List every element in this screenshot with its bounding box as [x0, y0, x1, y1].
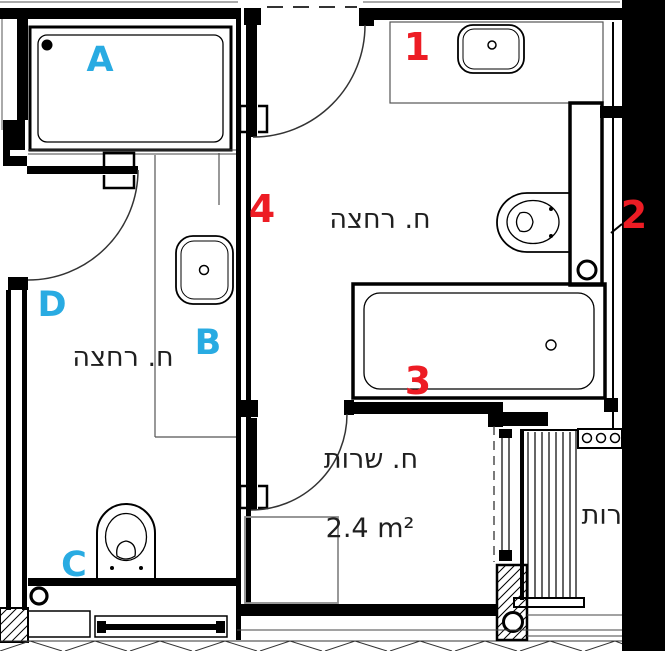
- vent-bar-three-circles: [578, 429, 622, 448]
- door-bathroom-main-swing-arc: [253, 25, 365, 137]
- marker-d: D: [37, 285, 66, 325]
- door-d: [27, 153, 138, 280]
- room-label-service: ח. שרות: [324, 444, 418, 475]
- room-label-bathroom-secondary: ח. רחצה: [72, 342, 173, 373]
- neighbor-room-label: רות: [582, 500, 622, 531]
- sink-1-drain: [488, 41, 496, 49]
- bathtub-a-drain: [42, 40, 53, 51]
- bottom-window: [28, 611, 227, 637]
- duct-pipe: [578, 261, 596, 279]
- left-wall: [3, 8, 28, 610]
- marker-4: 4: [249, 187, 275, 231]
- washing-machine: [245, 517, 338, 603]
- duct-shaft-right: [570, 103, 602, 285]
- marker-a: A: [86, 40, 113, 80]
- marker-3: 3: [405, 359, 431, 403]
- column-pipe: [504, 613, 523, 632]
- floor-plan-drawing: רות ח. רחצה ח. רחצה ח. שרות 2.4 m² 1 2 3…: [0, 0, 665, 651]
- wall-jog-tub-corner: [604, 398, 618, 412]
- door-bathroom-main: [240, 25, 365, 137]
- tile-paving-band: [0, 641, 623, 651]
- room-label-bathroom-main: ח. רחצה: [329, 204, 430, 235]
- marker-c: C: [61, 545, 87, 585]
- washbasin-b: [176, 236, 233, 304]
- bathtub-a: [30, 27, 231, 150]
- redaction-band-right: [622, 0, 665, 651]
- toilet-c: [97, 504, 155, 578]
- marker-b: B: [195, 323, 222, 363]
- neighbor-floor-lines: [237, 615, 622, 636]
- radiator-striped-element: [514, 430, 584, 607]
- hatched-wall-block-left: [0, 608, 28, 642]
- floor-plan: רות ח. רחצה ח. רחצה ח. שרות 2.4 m² 1 2 3…: [0, 0, 665, 651]
- marker-2: 2: [621, 193, 647, 237]
- bathtub-3-drain: [546, 340, 556, 350]
- pipe-chase: [494, 426, 512, 562]
- toilet-right: [497, 193, 570, 252]
- bathtub-3: [353, 284, 605, 398]
- sink-1: [458, 25, 524, 73]
- door-d-swing-arc: [28, 170, 138, 280]
- washbasin-b-drain: [200, 266, 209, 275]
- floor-pipe-left: [31, 588, 47, 604]
- marker-1: 1: [404, 25, 430, 69]
- top-wall: [0, 8, 622, 26]
- room-area-service: 2.4 m²: [326, 513, 415, 544]
- left-bathroom-bottom-wall: [28, 578, 236, 586]
